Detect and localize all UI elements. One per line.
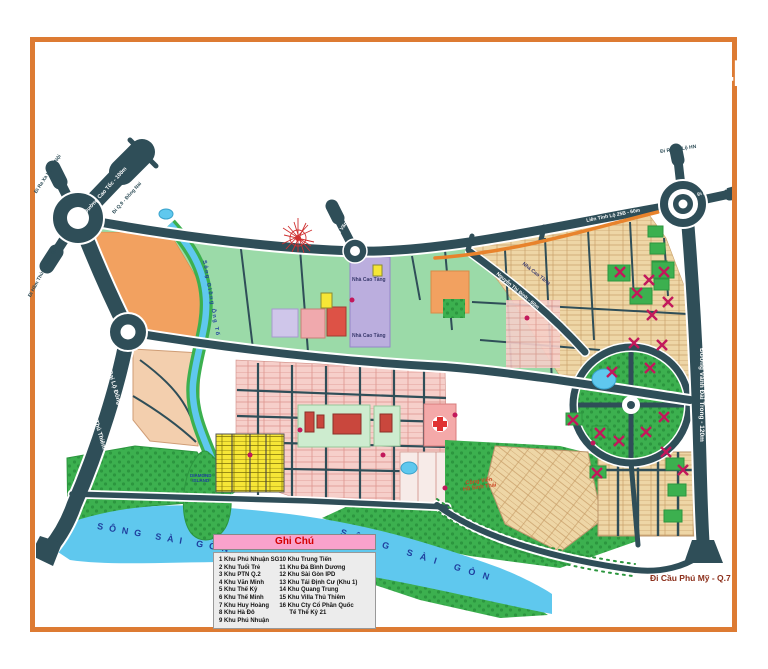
hospital-block [424, 404, 456, 446]
legend-item: 11 Khu Đá Bình Dương [279, 565, 372, 573]
yellow-block [216, 434, 284, 492]
legend-column-1: 1 Khu Phú Nhuận SG 2 Khu Tuổi Trẻ 3 Khu … [219, 557, 279, 625]
legend-item: 6 Khu Thế Minh [219, 595, 279, 603]
banner-subtitle-line2: QUY HOẠCH [48, 76, 232, 102]
highrise-label-2: Nhà Cao Tầng [352, 334, 386, 339]
legend-item: 7 Khu Huy Hoàng [219, 603, 279, 611]
circle-park [573, 347, 689, 463]
legend-item: 8 Khu Hà Đô [219, 610, 279, 618]
legend-item: 9 Khu Phú Nhuận [219, 618, 279, 626]
legend-column-2: 10 Khu Trung Tiến 11 Khu Đá Bình Dương 1… [279, 557, 372, 625]
legend-item: 15 Khu Villa Thủ Thiêm [279, 595, 372, 603]
legend-title: Ghi Chú [213, 534, 376, 550]
road-label-di-cau-phu-my: Đi Cầu Phú Mỹ - Q.7 [650, 574, 731, 583]
legend-item-wrap: Tế Thế Kỷ 21 [279, 610, 372, 618]
legend-item: 14 Khu Quang Trung [279, 587, 372, 595]
legend-item: 12 Khu Sài Gòn IPD [279, 572, 372, 580]
school-blocks [298, 405, 400, 447]
planning-map-page: Đi Ra Xa Lộ Hà Nội Đường Cao Tốc - 100m … [0, 0, 768, 669]
page-title: TỔNG THỂ THẠNH MỸ LỢI 174HA [230, 53, 723, 95]
legend: Ghi Chú 1 Khu Phú Nhuận SG 2 Khu Tuổi Tr… [213, 534, 376, 629]
legend-body: 1 Khu Phú Nhuận SG 2 Khu Tuổi Trẻ 3 Khu … [213, 552, 376, 629]
road-label-vanh-dai-trong: Đường Vành Đai Trong - 120m [698, 348, 705, 442]
legend-item: 1 Khu Phú Nhuận SG [219, 557, 279, 565]
diamond-line2: ISLAND [190, 479, 212, 484]
legend-item: 3 Khu PTN Q.2 [219, 572, 279, 580]
diamond-island-label: DIAMOND ISLAND [190, 474, 212, 483]
highrise-label-1: Nhà Cao Tầng [352, 278, 386, 283]
legend-item: 2 Khu Tuổi Trẻ [219, 565, 279, 573]
banner-subtitle-line1: BẢN ĐỒ [70, 46, 210, 72]
legend-item: 5 Khu Thế Kỷ [219, 587, 279, 595]
legend-item: 10 Khu Trung Tiến [279, 557, 372, 565]
legend-item: 13 Khu Tái Định Cư (Khu 1) [279, 580, 372, 588]
